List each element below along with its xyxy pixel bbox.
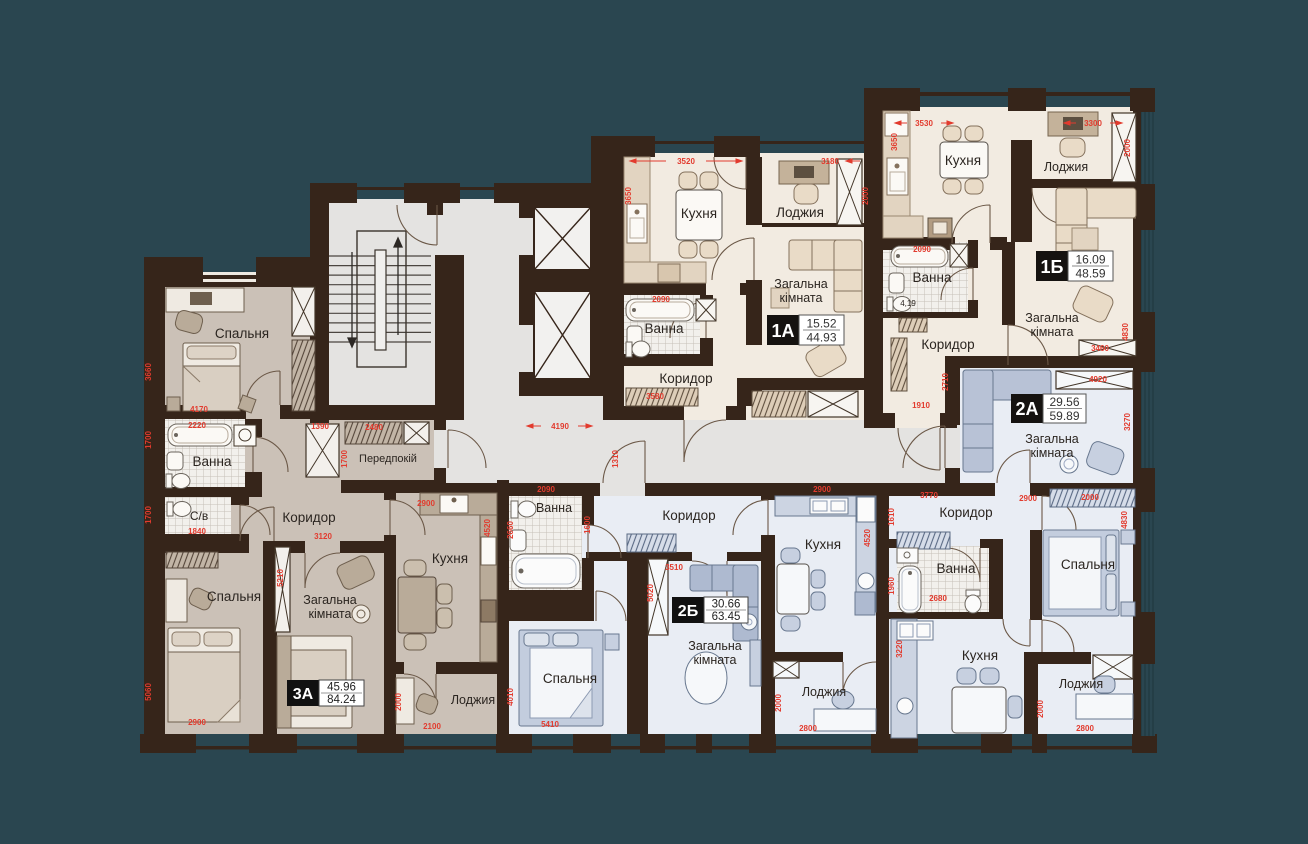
svg-text:2900: 2900 (417, 499, 435, 508)
svg-text:63.45: 63.45 (712, 611, 741, 623)
svg-text:2900: 2900 (813, 485, 831, 494)
svg-text:44.93: 44.93 (806, 331, 836, 345)
svg-text:2090: 2090 (913, 245, 931, 254)
svg-text:1390: 1390 (311, 422, 329, 431)
svg-text:4920: 4920 (1089, 375, 1107, 384)
svg-text:кімната: кімната (1031, 446, 1074, 460)
svg-text:2000: 2000 (1123, 139, 1132, 157)
svg-text:2000: 2000 (1036, 700, 1045, 718)
svg-text:16.09: 16.09 (1075, 253, 1105, 267)
svg-text:Кухня: Кухня (681, 206, 717, 221)
svg-text:2090: 2090 (537, 485, 555, 494)
svg-text:1Б: 1Б (1041, 257, 1064, 277)
svg-text:кімната: кімната (1031, 325, 1074, 339)
svg-text:3650: 3650 (890, 133, 899, 151)
svg-text:4190: 4190 (551, 422, 569, 431)
svg-text:Коридор: Коридор (659, 371, 712, 386)
svg-text:Лоджия: Лоджия (1044, 160, 1088, 174)
svg-text:4520: 4520 (863, 529, 872, 547)
svg-text:29.56: 29.56 (1049, 395, 1079, 409)
svg-text:1910: 1910 (912, 401, 930, 410)
svg-text:Ванна: Ванна (937, 561, 976, 576)
svg-text:2000: 2000 (861, 187, 870, 205)
svg-text:5410: 5410 (541, 720, 559, 729)
svg-text:кімната: кімната (694, 653, 737, 667)
svg-text:2900: 2900 (188, 718, 206, 727)
svg-text:Лоджия: Лоджия (451, 693, 495, 707)
svg-text:3770: 3770 (920, 491, 938, 500)
svg-text:1700: 1700 (144, 431, 153, 449)
svg-text:3А: 3А (293, 686, 314, 703)
svg-text:Ванна: Ванна (193, 454, 232, 469)
svg-text:1610: 1610 (887, 508, 896, 526)
svg-text:Кухня: Кухня (805, 537, 841, 552)
svg-text:Спальня: Спальня (207, 589, 261, 604)
svg-text:2Б: 2Б (678, 603, 698, 620)
svg-text:Загальна: Загальна (1025, 432, 1078, 446)
svg-text:кімната: кімната (309, 607, 352, 621)
svg-text:Загальна: Загальна (688, 639, 741, 653)
svg-text:Спальня: Спальня (543, 671, 597, 686)
svg-text:2000: 2000 (774, 694, 783, 712)
svg-text:Ванна: Ванна (645, 321, 684, 336)
svg-text:Ванна: Ванна (536, 501, 572, 515)
svg-text:Лоджия: Лоджия (1059, 677, 1103, 691)
svg-text:3530: 3530 (915, 119, 933, 128)
svg-text:4830: 4830 (1120, 511, 1129, 529)
svg-text:45.96: 45.96 (327, 682, 356, 694)
svg-text:3220: 3220 (895, 640, 904, 658)
svg-text:3180: 3180 (821, 157, 839, 166)
svg-text:4,19: 4,19 (900, 299, 916, 308)
svg-text:4010: 4010 (506, 688, 515, 706)
svg-text:15.52: 15.52 (806, 317, 836, 331)
svg-text:2100: 2100 (423, 722, 441, 731)
svg-text:2А: 2А (1015, 399, 1038, 419)
svg-text:Передпокій: Передпокій (359, 453, 417, 465)
svg-text:2000: 2000 (1081, 493, 1099, 502)
svg-text:Загальна: Загальна (1025, 311, 1078, 325)
svg-text:3510: 3510 (665, 563, 683, 572)
svg-text:3660: 3660 (144, 363, 153, 381)
svg-text:4830: 4830 (1121, 323, 1130, 341)
svg-text:1700: 1700 (144, 506, 153, 524)
svg-text:59.89: 59.89 (1049, 409, 1079, 423)
svg-text:Спальня: Спальня (1061, 557, 1115, 572)
svg-text:2090: 2090 (652, 295, 670, 304)
svg-text:Кухня: Кухня (432, 551, 468, 566)
svg-text:1310: 1310 (611, 450, 620, 468)
svg-text:2800: 2800 (799, 724, 817, 733)
svg-text:1840: 1840 (188, 527, 206, 536)
svg-text:5210: 5210 (276, 569, 285, 587)
svg-text:5060: 5060 (144, 683, 153, 701)
svg-text:Лоджия: Лоджия (802, 685, 846, 699)
svg-text:2680: 2680 (929, 594, 947, 603)
svg-text:5020: 5020 (646, 584, 655, 602)
svg-text:Кухня: Кухня (962, 648, 998, 663)
svg-text:2220: 2220 (188, 421, 206, 430)
svg-text:2800: 2800 (1076, 724, 1094, 733)
svg-text:84.24: 84.24 (327, 694, 356, 706)
svg-text:1960: 1960 (887, 577, 896, 595)
svg-text:2660: 2660 (506, 521, 515, 539)
svg-text:2000: 2000 (394, 693, 403, 711)
svg-text:Загальна: Загальна (303, 593, 356, 607)
svg-text:3300: 3300 (1084, 119, 1102, 128)
svg-text:Загальна: Загальна (774, 277, 827, 291)
svg-text:3460: 3460 (1091, 344, 1109, 353)
svg-text:3650: 3650 (624, 187, 633, 205)
svg-text:48.59: 48.59 (1075, 267, 1105, 281)
svg-text:Коридор: Коридор (282, 510, 335, 525)
svg-text:Коридор: Коридор (939, 505, 992, 520)
svg-text:2900: 2900 (1019, 494, 1037, 503)
svg-text:1700: 1700 (340, 450, 349, 468)
svg-text:3270: 3270 (1123, 413, 1132, 431)
svg-text:1А: 1А (771, 321, 794, 341)
svg-text:Коридор: Коридор (921, 337, 974, 352)
svg-text:кімната: кімната (780, 291, 823, 305)
svg-text:3580: 3580 (646, 392, 664, 401)
svg-text:Лоджия: Лоджия (776, 205, 824, 220)
svg-text:2480: 2480 (365, 423, 383, 432)
svg-text:2710: 2710 (941, 373, 950, 391)
svg-text:Ванна: Ванна (913, 270, 952, 285)
svg-text:С/в: С/в (190, 509, 208, 523)
svg-text:Кухня: Кухня (945, 153, 981, 168)
svg-text:Спальня: Спальня (215, 326, 269, 341)
svg-text:3120: 3120 (314, 532, 332, 541)
svg-text:4170: 4170 (190, 405, 208, 414)
svg-text:30.66: 30.66 (712, 599, 741, 611)
svg-text:4520: 4520 (483, 519, 492, 537)
svg-text:3520: 3520 (677, 157, 695, 166)
svg-text:Коридор: Коридор (662, 508, 715, 523)
svg-text:1600: 1600 (583, 516, 592, 534)
